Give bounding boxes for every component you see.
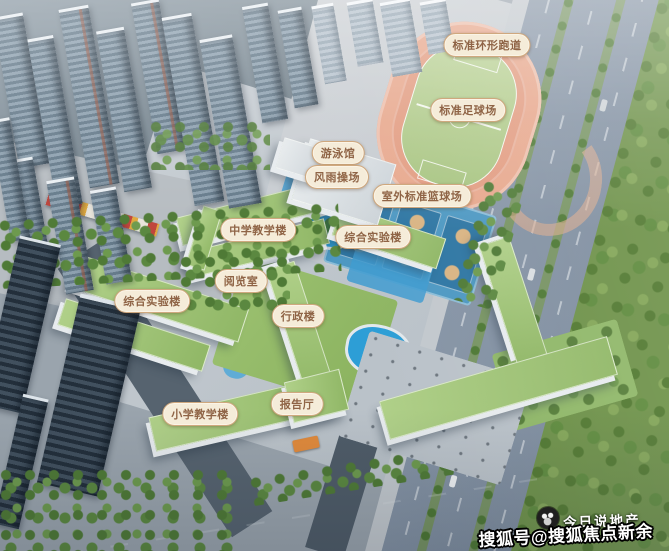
label-reading-room: 阅览室 [215,269,268,293]
label-standard-ring-track: 标准环形跑道 [444,33,531,57]
label-primary-school-building: 小学教学楼 [162,402,238,426]
label-covered-playground: 风雨操场 [305,165,369,189]
car [527,268,536,281]
tree-cluster [150,120,270,170]
label-standard-football-field: 标准足球场 [430,98,506,122]
label-outdoor-basketball-courts: 室外标准篮球场 [373,184,472,208]
label-swimming-hall: 游泳馆 [312,141,365,165]
label-admin-building: 行政楼 [272,304,325,328]
label-lab-building-west: 综合实验楼 [114,289,190,313]
label-lecture-hall: 报告厅 [271,392,324,416]
campus-aerial-rendering: 标准环形跑道 标准足球场 游泳馆 风雨操场 室外标准篮球场 中学教学楼 综合实验… [0,0,669,551]
label-middle-school-building: 中学教学楼 [220,218,296,242]
label-lab-building-east: 综合实验楼 [335,225,411,249]
tree-cluster [0,468,235,551]
car [599,99,608,112]
